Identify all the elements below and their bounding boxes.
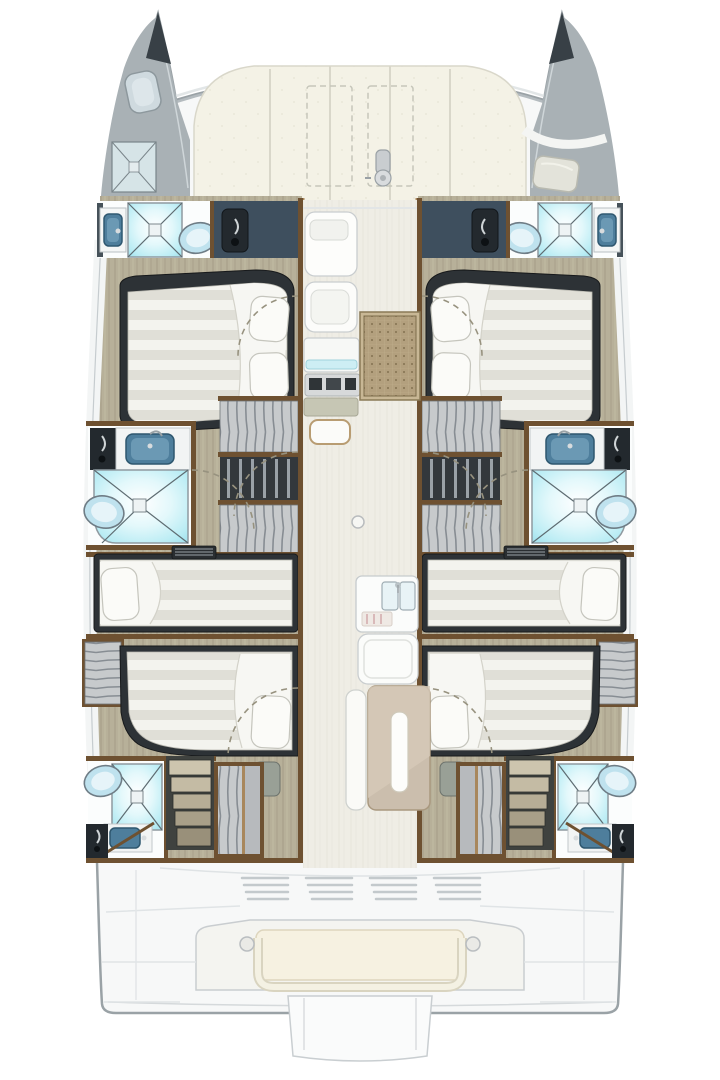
plan-drawing — [0, 0, 720, 1080]
stool — [310, 420, 350, 444]
dinette-bench — [346, 690, 366, 810]
open-shelves — [220, 457, 298, 500]
transom-platform — [288, 996, 432, 1061]
table-insert — [391, 712, 408, 792]
sink-icon — [104, 823, 154, 854]
forward-wardrobe — [210, 201, 298, 258]
rattan-mat — [360, 312, 420, 400]
berth-cushion — [532, 155, 580, 193]
floor-hatch-circle — [352, 516, 364, 528]
double-sink-icon — [382, 582, 415, 610]
cabinet-inset — [310, 220, 348, 240]
sink-icon — [104, 214, 122, 246]
hanging-locker — [220, 505, 298, 556]
louver-vent — [172, 546, 216, 559]
wardrobe-icon — [90, 428, 116, 470]
galley — [356, 576, 418, 684]
grommet — [240, 937, 254, 951]
sink-icon — [116, 428, 190, 470]
locker-column — [218, 396, 302, 556]
aft-bulkhead — [86, 858, 302, 863]
pillow — [100, 567, 140, 621]
pillow — [249, 352, 289, 399]
side-desk — [304, 398, 358, 416]
pillow — [251, 695, 292, 749]
inboard-wall — [298, 198, 303, 863]
forward-head — [97, 201, 220, 258]
dinette-table — [368, 686, 430, 810]
hanging-locker — [220, 401, 298, 452]
foredeck-sunpad — [194, 66, 526, 202]
shower-icon — [128, 203, 182, 257]
worktop-strip — [362, 612, 392, 626]
grommet — [466, 937, 480, 951]
dinette — [346, 686, 430, 810]
mid-forward-cabin-bed — [86, 546, 302, 632]
shower-pan-icon — [112, 142, 156, 192]
companionway-stairs — [166, 756, 214, 850]
catamaran-deck-plan — [0, 0, 720, 1080]
mid-head — [81, 421, 196, 550]
bench-cushion — [256, 930, 464, 980]
hanging-wardrobe — [82, 639, 124, 707]
cabin-divider — [86, 634, 302, 639]
foredeck — [176, 66, 544, 202]
wardrobe-icon — [86, 824, 108, 858]
pillow — [248, 295, 290, 342]
aft-hanging-locker — [214, 762, 264, 858]
nav-desk — [304, 338, 359, 372]
cockpit-bench — [196, 920, 524, 990]
settee — [305, 282, 357, 332]
galley-bench — [358, 634, 418, 684]
instrument-panel — [305, 374, 360, 396]
